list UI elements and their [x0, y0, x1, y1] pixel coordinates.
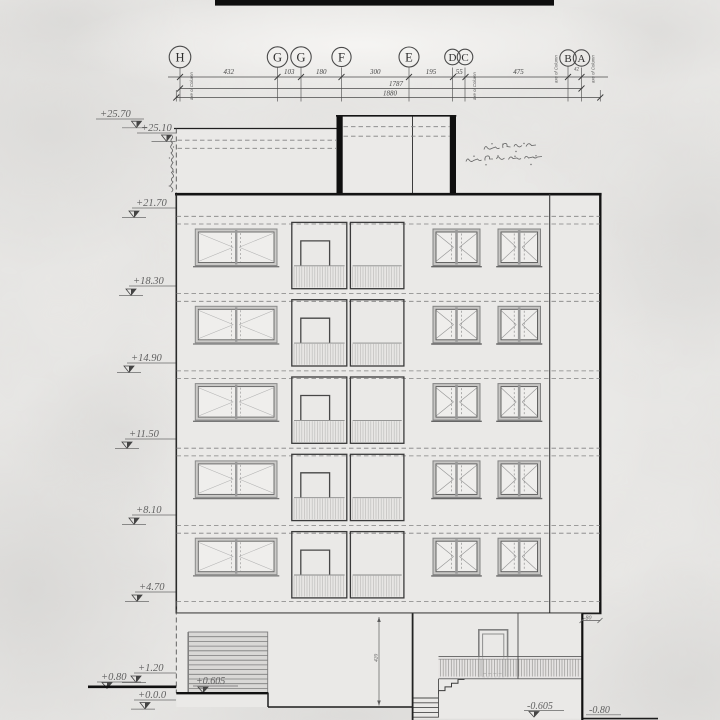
svg-text:+8.10: +8.10 — [136, 505, 162, 516]
svg-text:B: B — [564, 53, 571, 65]
svg-text:axe of Column: axe of Column — [189, 72, 194, 100]
svg-text:axe of Column: axe of Column — [472, 72, 477, 100]
svg-text:103: 103 — [284, 68, 295, 76]
svg-text:E: E — [405, 50, 413, 64]
svg-text:+25.70: +25.70 — [100, 109, 131, 120]
svg-text:G: G — [273, 50, 282, 64]
svg-text:axe of Column: axe of Column — [591, 55, 596, 83]
svg-text:475: 475 — [513, 68, 524, 76]
svg-text:H: H — [175, 50, 184, 64]
svg-text:432: 432 — [224, 68, 235, 76]
svg-text:+25.10: +25.10 — [141, 123, 172, 134]
svg-text:D: D — [449, 52, 457, 64]
svg-text:C: C — [461, 52, 468, 64]
svg-text:+11.50: +11.50 — [129, 429, 160, 440]
svg-text:+0.80: +0.80 — [101, 672, 127, 683]
svg-text:A: A — [578, 53, 586, 65]
svg-text:420: 420 — [372, 654, 379, 663]
svg-text:+21.70: +21.70 — [136, 198, 167, 209]
svg-text:+1.20: +1.20 — [138, 663, 164, 674]
svg-text:+0.0.0: +0.0.0 — [138, 690, 167, 701]
svg-text:80: 80 — [586, 616, 592, 622]
svg-text:195: 195 — [426, 68, 437, 76]
svg-text:+14.90: +14.90 — [131, 353, 162, 364]
svg-text:G: G — [296, 50, 305, 64]
svg-text:300: 300 — [369, 68, 381, 76]
svg-text:1880: 1880 — [383, 90, 398, 98]
svg-text:55: 55 — [456, 68, 464, 76]
svg-text:-0.80: -0.80 — [589, 705, 610, 716]
svg-text:42: 42 — [574, 68, 580, 73]
svg-text:1787: 1787 — [389, 80, 404, 88]
svg-text:F: F — [338, 50, 345, 64]
svg-text:+0.605: +0.605 — [196, 676, 225, 687]
svg-text:180: 180 — [316, 68, 327, 76]
svg-text:+4.70: +4.70 — [139, 582, 165, 593]
svg-text:axe of Column: axe of Column — [554, 55, 559, 83]
svg-text:+18.30: +18.30 — [133, 276, 164, 287]
